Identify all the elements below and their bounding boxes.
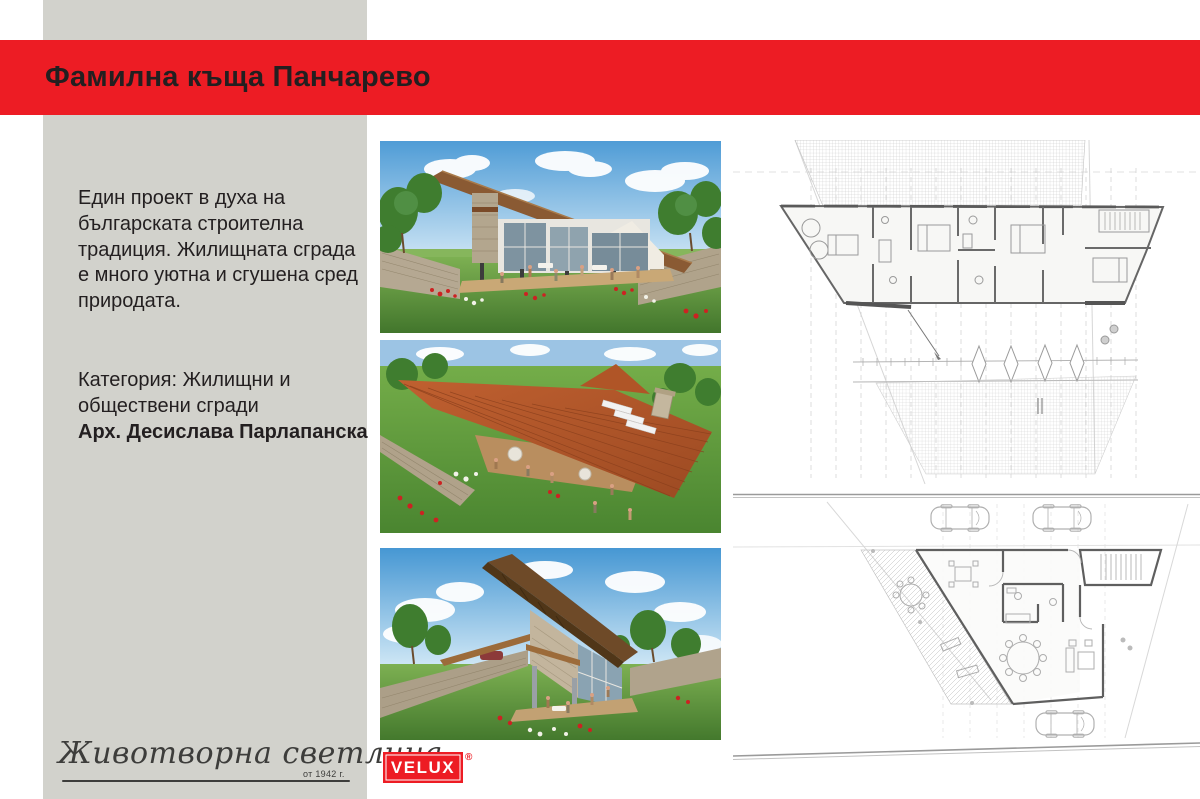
description-line: е много уютна и сгушена сред	[78, 263, 378, 289]
floor-plans-column	[733, 140, 1200, 762]
description-line: традиция. Жилищната сграда	[78, 238, 378, 264]
floor-plan-ground-image	[733, 492, 1200, 762]
render-aerial-view-image	[380, 340, 721, 533]
floor-plan-upper-image	[733, 140, 1200, 492]
render-side-view-image	[380, 548, 721, 740]
signature-underline	[62, 780, 350, 782]
category-block: Категория: Жилищни и обществени сгради А…	[78, 368, 378, 445]
velux-logo-text: VELUX	[391, 758, 455, 778]
velux-logo: VELUX	[383, 752, 463, 783]
description-line: българската строителна	[78, 212, 378, 238]
registered-trademark-symbol: ®	[465, 752, 472, 763]
category-line: Категория: Жилищни и	[78, 368, 378, 394]
description-line: природата.	[78, 289, 378, 315]
render-front-view-image	[380, 141, 721, 333]
architect-name: Арх. Десислава Парлапанска	[78, 420, 378, 446]
signature-logo: Животворна светлина от 1942 г.	[58, 736, 358, 792]
render-aerial-view-illustration	[380, 340, 721, 533]
signature-script-text: Животворна светлина	[58, 736, 358, 771]
page-title: Фамилна къща Панчарево	[0, 61, 431, 94]
signature-since-text: от 1942 г.	[303, 769, 345, 779]
render-front-view-illustration	[380, 141, 721, 333]
project-description: Един проект в духа на българската строит…	[78, 186, 378, 315]
description-line: Един проект в духа на	[78, 186, 378, 212]
render-column	[380, 0, 721, 799]
category-line: обществени сгради	[78, 394, 378, 420]
render-side-view-illustration	[380, 548, 721, 740]
